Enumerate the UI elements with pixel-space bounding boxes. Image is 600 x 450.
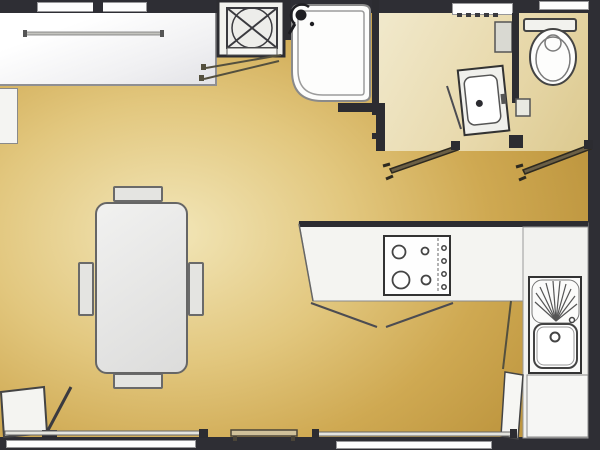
washbasin-vanity: [458, 66, 510, 135]
fixtures-layer: [0, 0, 600, 450]
vanity-door-open-line: [447, 86, 461, 129]
door-shower-room: [383, 141, 460, 179]
wall-bath-wc-divider: [512, 13, 519, 103]
kitchen-base-unit: [527, 375, 588, 437]
corner-cabinet-door-leaf: [501, 372, 523, 439]
door-wc: [516, 140, 593, 180]
corner-shower: [285, 0, 379, 112]
threshold-bench: [231, 430, 297, 441]
bathroom-wall-cabinet: [495, 22, 512, 52]
floor-plan: [0, 0, 600, 450]
entrance-door: [1, 387, 71, 438]
window-sill-top: [23, 30, 164, 37]
bathroom-window-ticks: [457, 13, 498, 17]
wall-stub-bathroom: [372, 103, 385, 151]
wardrobe-cabinet: [199, 1, 284, 81]
kitchen-sink: [529, 277, 581, 373]
toilet: [524, 19, 576, 85]
wall-box: [516, 99, 530, 116]
wall-stub-divider-end: [509, 135, 523, 148]
window-sill-bottom-right: [312, 429, 517, 438]
corner-cabinet-door-line: [503, 301, 511, 369]
hob-4-burner: [384, 236, 450, 295]
